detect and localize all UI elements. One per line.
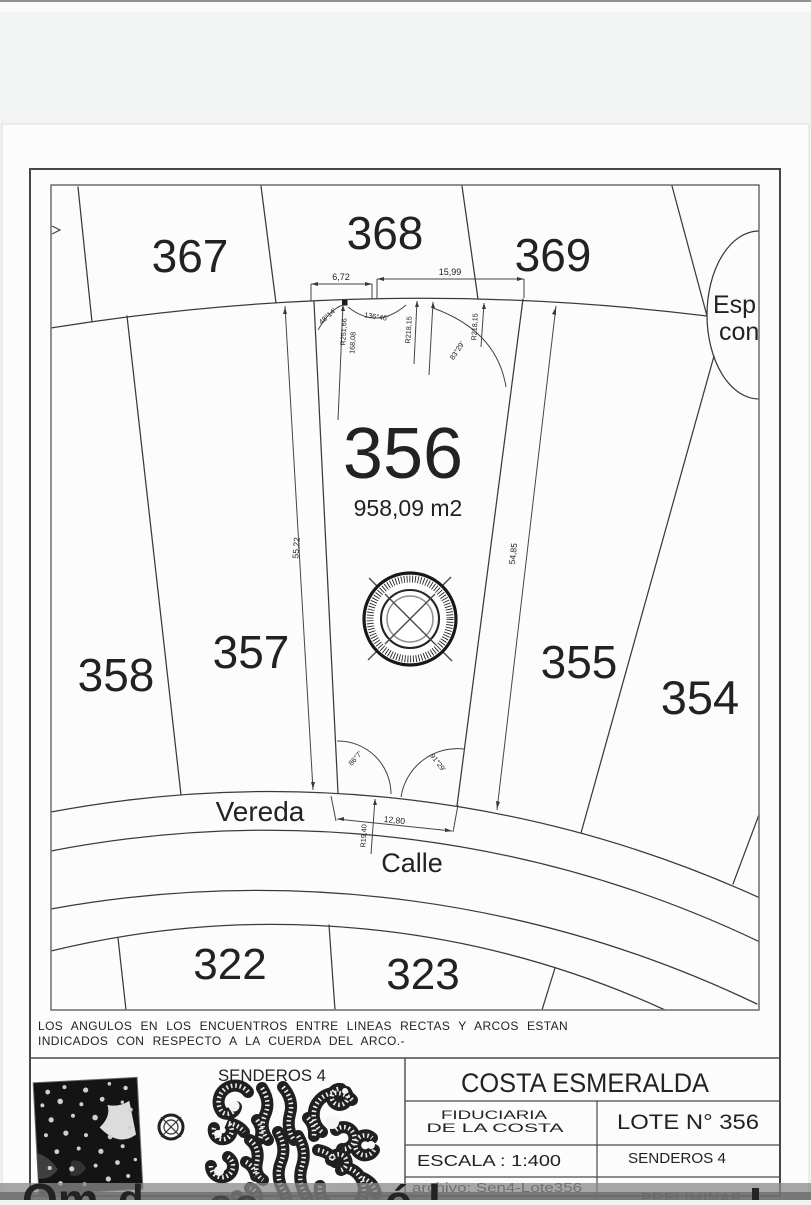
svg-text:SENDEROS 4: SENDEROS 4 xyxy=(628,1150,726,1167)
svg-text:R218,15: R218,15 xyxy=(469,313,479,341)
svg-text:323: 323 xyxy=(386,950,459,999)
svg-text:168,08: 168,08 xyxy=(347,332,357,354)
svg-text:COSTA ESMERALDA: COSTA ESMERALDA xyxy=(461,1068,709,1098)
svg-text:958,09 m2: 958,09 m2 xyxy=(354,495,463,521)
svg-text:367: 367 xyxy=(152,230,229,282)
svg-text:Om: Om xyxy=(22,1174,99,1200)
svg-text:R218,15: R218,15 xyxy=(403,316,413,344)
svg-text:6,72: 6,72 xyxy=(332,272,350,282)
svg-text:368: 368 xyxy=(347,207,424,259)
svg-text:d: d xyxy=(118,1176,144,1200)
svg-text:l: l xyxy=(428,1175,441,1200)
svg-text:INDICADOS CON RESPECTO A LA CU: INDICADOS CON RESPECTO A LA CUERDA DEL A… xyxy=(38,1034,405,1048)
svg-text:Esp: Esp xyxy=(713,291,756,319)
svg-text:15,99: 15,99 xyxy=(439,267,462,277)
svg-text:Calle: Calle xyxy=(381,848,443,878)
svg-text:356: 356 xyxy=(343,414,463,494)
svg-text:LOTE N° 356: LOTE N° 356 xyxy=(617,1111,759,1134)
svg-text:55,22: 55,22 xyxy=(290,537,301,559)
svg-text:R19,40: R19,40 xyxy=(358,824,368,848)
svg-text:oo: oo xyxy=(208,1180,259,1200)
svg-text:Vereda: Vereda xyxy=(216,796,305,827)
svg-text:ESCALA : 1:400: ESCALA : 1:400 xyxy=(417,1153,561,1170)
svg-text:355: 355 xyxy=(541,636,618,688)
svg-text:322: 322 xyxy=(193,940,266,989)
svg-text:369: 369 xyxy=(515,229,592,281)
svg-text:357: 357 xyxy=(213,626,290,678)
svg-text:358: 358 xyxy=(78,649,155,701)
svg-text:con: con xyxy=(719,318,759,346)
svg-text:FIDUCIARIA: FIDUCIARIA xyxy=(441,1108,547,1122)
svg-text:LOS ANGULOS EN LOS ENCUENTROS: LOS ANGULOS EN LOS ENCUENTROS ENTRE LINE… xyxy=(38,1019,568,1033)
svg-text:354: 354 xyxy=(661,671,739,724)
svg-text:DE LA COSTA: DE LA COSTA xyxy=(427,1121,564,1135)
svg-text:ó: ó xyxy=(385,1177,412,1200)
